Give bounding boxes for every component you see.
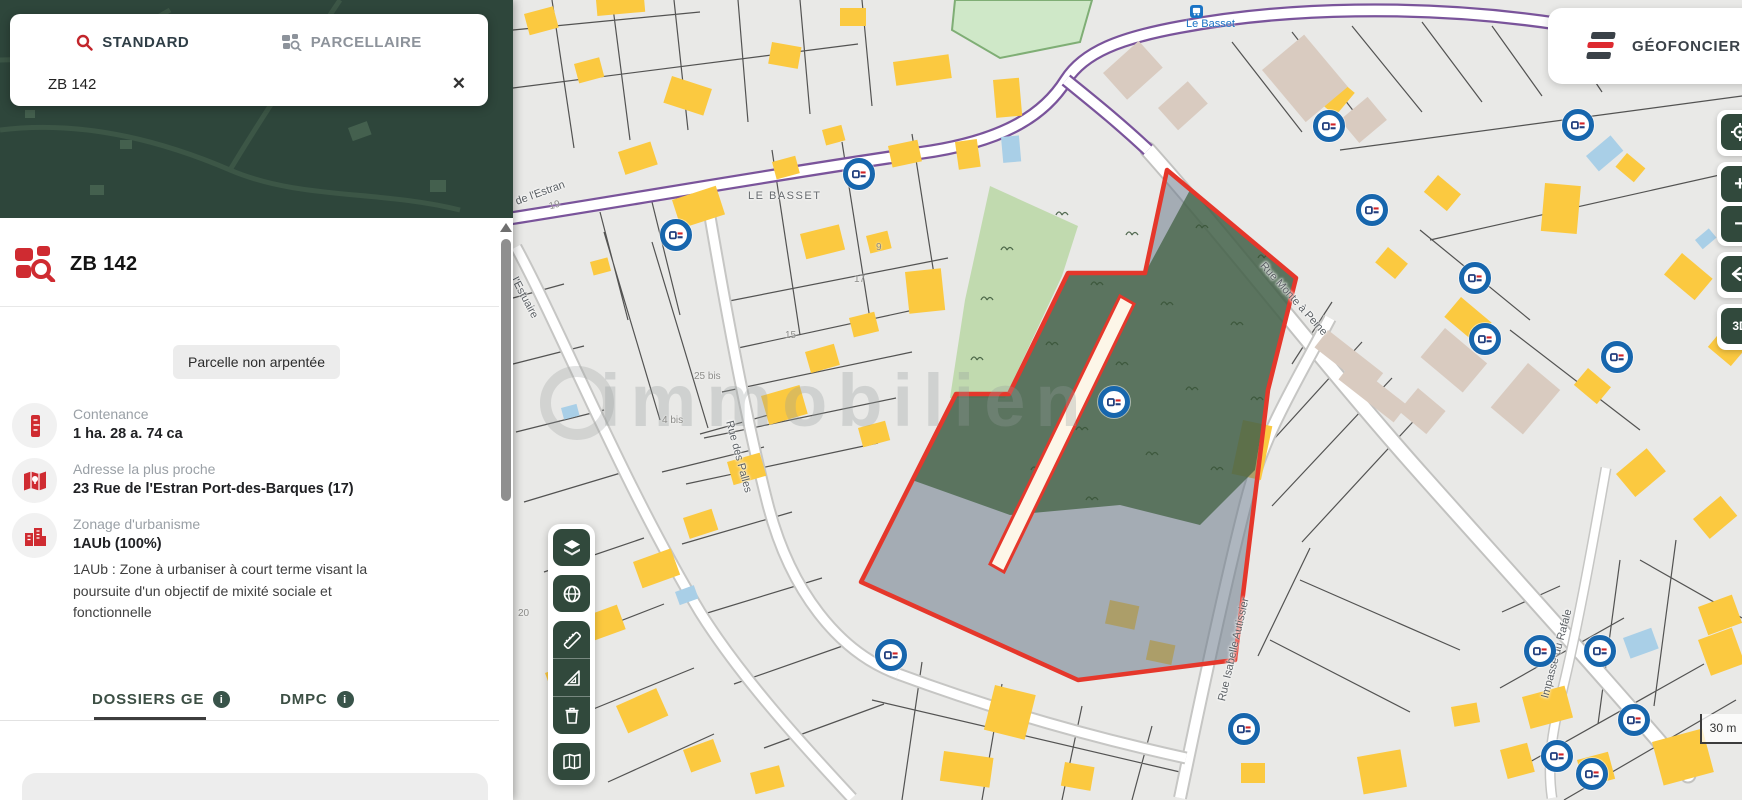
search-icon <box>76 34 93 51</box>
globe-icon[interactable] <box>553 575 590 612</box>
map-scale: 30 m <box>1700 714 1742 744</box>
tab-dmpc-label: DMPC <box>280 691 327 708</box>
search-card: STANDARD PARCELLAIRE ✕ <box>10 14 488 106</box>
field-value: 23 Rue de l'Estran Port-des-Barques (17) <box>73 477 354 497</box>
dossier-marker[interactable] <box>1356 194 1388 226</box>
field-label: Contenance <box>73 403 183 422</box>
parcel-number: 9 <box>876 242 882 253</box>
dossier-marker[interactable] <box>1469 323 1501 355</box>
tab-dossiers-ge[interactable]: DOSSIERS GE i <box>92 691 230 720</box>
parcel-search-icon <box>282 34 302 51</box>
tab-parcellaire-label: PARCELLAIRE <box>311 34 422 51</box>
dossiers-content-card <box>22 773 488 800</box>
parcel-number: 15 <box>785 330 796 341</box>
tab-standard[interactable]: STANDARD <box>76 34 189 51</box>
map-book-icon[interactable] <box>553 743 590 780</box>
control-card <box>1717 252 1742 298</box>
scroll-up-icon[interactable] <box>500 223 512 232</box>
dossier-marker[interactable] <box>1584 635 1616 667</box>
dossier-marker[interactable] <box>1541 740 1573 772</box>
set-square-icon[interactable] <box>553 658 590 696</box>
dossier-marker[interactable] <box>660 219 692 251</box>
parcel-panel: ZB 142 Parcelle non arpentée Contenance … <box>0 218 513 800</box>
draw-tool-group <box>553 621 590 734</box>
tab-dmpc[interactable]: DMPC i <box>280 691 353 720</box>
dossier-marker[interactable] <box>1459 262 1491 294</box>
dossier-marker[interactable] <box>843 158 875 190</box>
brand-name: GÉOFONCIER <box>1632 38 1741 55</box>
view-3d-button[interactable]: 3D <box>1721 308 1742 344</box>
parcel-number: 4 bis <box>662 415 683 426</box>
field-label: Zonage d'urbanisme <box>73 513 371 532</box>
scale-label: 30 m <box>1710 721 1737 735</box>
tab-parcellaire[interactable]: PARCELLAIRE <box>282 34 422 51</box>
field-zonage: Zonage d'urbanisme 1AUb (100%) 1AUb : Zo… <box>0 503 513 624</box>
dossier-marker[interactable] <box>1098 386 1130 418</box>
brand-card[interactable]: GÉOFONCIER <box>1548 8 1742 84</box>
parcel-number: 17 <box>854 274 865 285</box>
parcel-id-title: ZB 142 <box>70 253 137 276</box>
scrollbar-thumb[interactable] <box>501 239 511 501</box>
divider <box>0 306 513 307</box>
trash-icon[interactable] <box>553 696 590 734</box>
parcel-number: 25 bis <box>694 371 721 382</box>
dossier-marker[interactable] <box>1524 635 1556 667</box>
tab-standard-label: STANDARD <box>102 34 189 51</box>
buildings-icon <box>12 513 57 558</box>
info-icon[interactable]: i <box>337 691 354 708</box>
bus-stop: Le Basset <box>1186 5 1246 30</box>
bus-icon <box>1190 5 1203 18</box>
bus-stop-label: Le Basset <box>1186 18 1246 30</box>
dossier-marker[interactable] <box>1618 704 1650 736</box>
panel-tabs: DOSSIERS GE i DMPC i <box>0 691 513 721</box>
sidebar-scrollbar <box>499 218 513 800</box>
control-card: + − <box>1717 162 1742 246</box>
field-label: Adresse la plus proche <box>73 458 354 477</box>
place-label: LE BASSET <box>748 190 821 202</box>
parcel-result-icon <box>14 246 56 282</box>
geofoncier-app: immobilien de l'Estran Rue des Palles Ru… <box>0 0 1742 800</box>
dossier-marker[interactable] <box>1576 758 1608 790</box>
field-description: 1AUb : Zone à urbaniser à court terme vi… <box>73 552 371 624</box>
dossier-marker[interactable] <box>1228 713 1260 745</box>
ruler-icon[interactable] <box>553 621 590 658</box>
layers-icon[interactable] <box>553 529 590 566</box>
sidebar-map-preview: STANDARD PARCELLAIRE ✕ <box>0 0 513 218</box>
info-icon[interactable]: i <box>213 691 230 708</box>
back-extent-button[interactable] <box>1721 256 1742 292</box>
field-contenance: Contenance 1 ha. 28 a. 74 ca <box>0 393 513 448</box>
dossier-marker[interactable] <box>1313 110 1345 142</box>
map-pin-icon <box>12 458 57 503</box>
search-input[interactable] <box>46 75 448 94</box>
dossier-marker[interactable] <box>1601 341 1633 373</box>
ruler-icon <box>12 403 57 448</box>
field-adresse: Adresse la plus proche 23 Rue de l'Estra… <box>0 448 513 503</box>
divider <box>0 720 513 721</box>
tab-dossiers-ge-label: DOSSIERS GE <box>92 691 204 708</box>
zoom-in-button[interactable]: + <box>1721 166 1742 202</box>
status-badge: Parcelle non arpentée <box>173 345 340 379</box>
control-card: 3D <box>1717 304 1742 350</box>
zoom-out-button[interactable]: − <box>1721 206 1742 242</box>
field-value: 1AUb (100%) <box>73 532 371 552</box>
parcel-number: 20 <box>518 608 529 619</box>
dossier-marker[interactable] <box>1562 109 1594 141</box>
dossier-marker[interactable] <box>875 639 907 671</box>
map-tool-panel <box>548 524 595 785</box>
clear-search-icon[interactable]: ✕ <box>448 74 470 94</box>
field-value: 1 ha. 28 a. 74 ca <box>73 422 183 442</box>
locate-button[interactable] <box>1721 114 1742 150</box>
sidebar: STANDARD PARCELLAIRE ✕ <box>0 0 513 800</box>
geofoncier-logo-icon <box>1586 31 1620 61</box>
control-card <box>1717 110 1742 156</box>
